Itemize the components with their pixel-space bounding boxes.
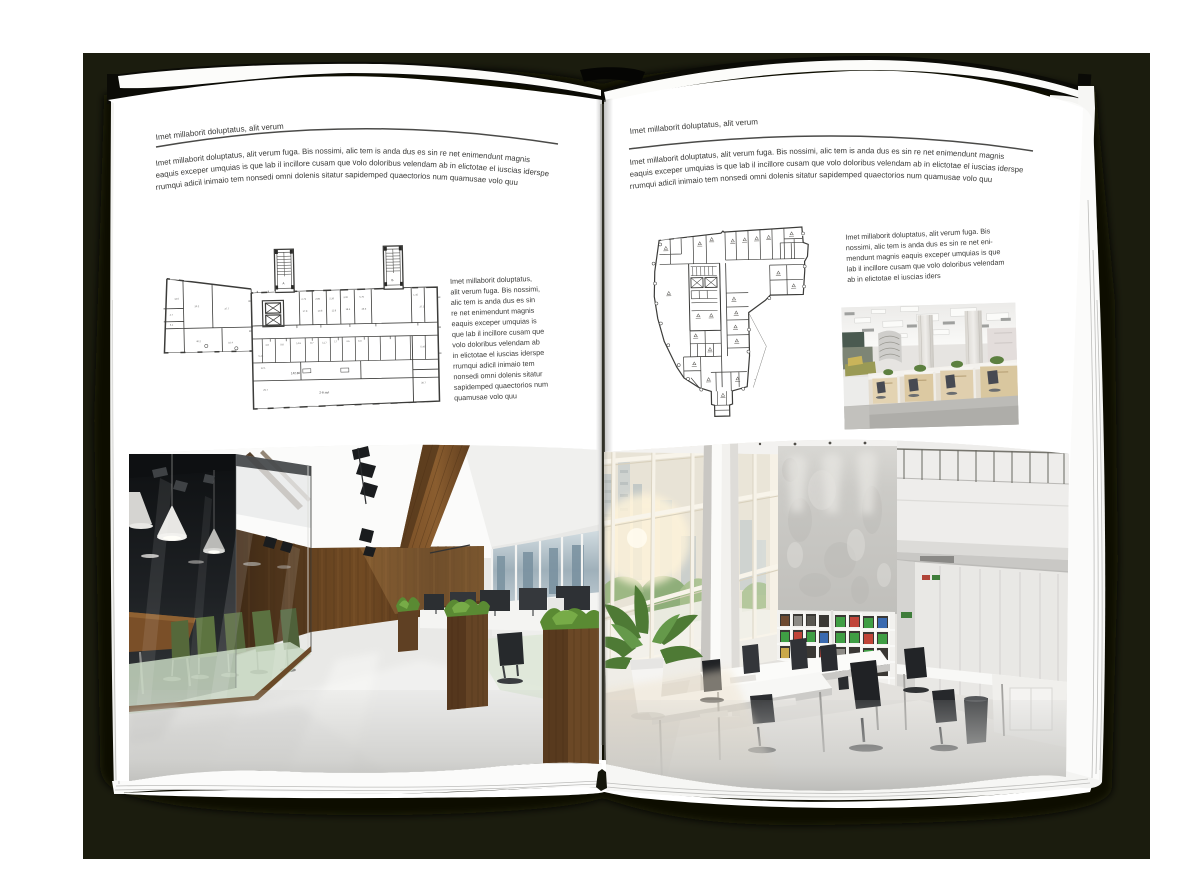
svg-text:26.6: 26.6	[362, 308, 367, 311]
svg-text:1.45: 1.45	[413, 294, 418, 297]
svg-text:29.7: 29.7	[263, 389, 268, 392]
svg-text:37.7: 37.7	[225, 307, 230, 310]
svg-text:40.2: 40.2	[196, 340, 201, 343]
svg-text:2.75: 2.75	[301, 298, 306, 301]
svg-text:3.00: 3.00	[343, 296, 348, 299]
svg-text:Б: Б	[391, 278, 393, 282]
svg-text:142.80: 142.80	[291, 371, 301, 375]
svg-text:11.7: 11.7	[322, 341, 327, 344]
svg-text:10.8: 10.8	[318, 310, 323, 313]
svg-text:2-й зал: 2-й зал	[319, 390, 329, 394]
svg-text:11.8: 11.8	[332, 309, 337, 312]
svg-text:5.75: 5.75	[359, 296, 364, 299]
svg-text:36.7: 36.7	[421, 381, 426, 384]
svg-text:5.40: 5.40	[420, 345, 425, 348]
svg-text:10.4: 10.4	[228, 341, 233, 344]
svg-text:37.2: 37.2	[420, 305, 425, 308]
svg-text:5.43: 5.43	[259, 355, 264, 358]
svg-text:17.8: 17.8	[303, 310, 308, 313]
svg-text:2.30: 2.30	[329, 297, 334, 300]
svg-text:A: A	[282, 281, 284, 285]
svg-text:30.2: 30.2	[194, 305, 199, 308]
svg-text:12.6: 12.6	[174, 298, 179, 301]
svg-text:2.80: 2.80	[315, 298, 320, 301]
svg-text:14.6: 14.6	[296, 342, 301, 345]
svg-text:12.1: 12.1	[261, 367, 266, 370]
svg-text:18.5: 18.5	[346, 308, 351, 311]
